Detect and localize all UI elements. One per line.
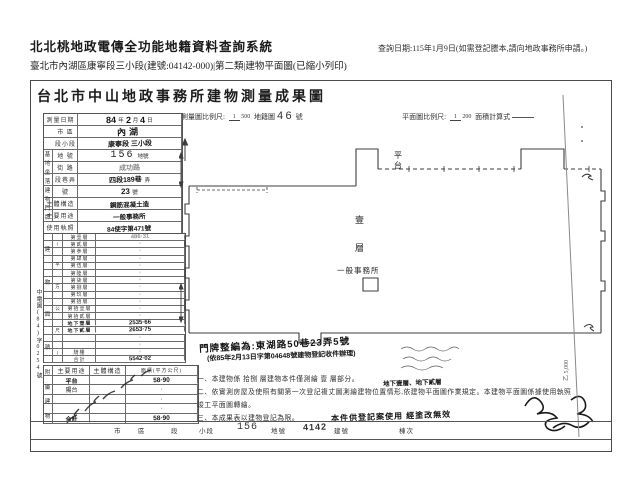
- doorno-value: 23號: [78, 186, 182, 197]
- bottom-strip-cell: 市: [114, 425, 122, 435]
- floor-row-value: ·: [96, 277, 185, 283]
- city-value: 內湖: [78, 126, 182, 137]
- cadastre-map-unit: 號: [296, 113, 303, 121]
- floor-row-value: ·: [96, 299, 185, 305]
- floor-row-label: 第柒層: [64, 277, 96, 283]
- dimension-arrow-marks: [179, 153, 183, 322]
- bottom-strip-cell: 區: [138, 425, 146, 435]
- bottom-strip-cell: 小段: [199, 425, 214, 435]
- floor-row: 第玖層·: [44, 292, 185, 299]
- city-name: 內湖: [117, 126, 141, 137]
- floor-row-label: 第肆層: [64, 256, 96, 262]
- bottom-strip-cell: 4142: [303, 422, 327, 433]
- floor-area-column-label: 建物面積: [43, 233, 53, 363]
- margin-reference-note: 中電圖(84)字0254號: [32, 289, 43, 414]
- plan-scale-label: 平面圖比例尺:: [402, 113, 446, 121]
- doorno-suffix: 號: [132, 188, 138, 196]
- floor-row-label: [64, 335, 96, 341]
- info-row: 街 路成功路: [44, 162, 182, 174]
- street-value: 成功路: [78, 162, 182, 173]
- floor-row-label: 第參層: [64, 248, 96, 254]
- survey-month-unit: 月: [133, 116, 139, 124]
- document-subtitle: 臺北市內湖區康寧段三小段(建號:04142-000)|第二類|建物平面圖(已縮小…: [30, 58, 347, 72]
- bottom-strip-cell: 地號: [271, 425, 286, 435]
- floor-row: ·: [44, 342, 185, 349]
- floor-row: 第伍層·: [44, 263, 185, 270]
- lane-name: 四段189巷: [109, 174, 142, 185]
- system-title: 北北桃地政電傳全功能地籍資料查詢系統: [30, 36, 273, 55]
- floor-row: 第拾壹層·: [44, 306, 185, 313]
- paper-stock-number: 乙 5,000: [561, 360, 570, 381]
- note-line-1: 一、本建物係 拾捌 層建物本件僅測繪 壹 層部分。: [197, 373, 577, 386]
- info-row: 市 區內湖: [44, 126, 182, 138]
- lane-suffix: 弄: [145, 176, 151, 184]
- info-row: 段小段康寧段 三小段: [44, 138, 182, 150]
- site-group-char-2: 坐: [45, 168, 51, 176]
- lot-number: 156: [110, 150, 134, 161]
- floor-row: 第陸層·: [44, 270, 185, 277]
- floor-col-label-char-1: 物: [45, 278, 51, 286]
- plan-stair-box: [363, 278, 378, 291]
- cadastre-map-number: 46: [277, 111, 294, 123]
- survey-date-value: 84年2月4日: [78, 114, 182, 125]
- floor-col-label-char-3: 積: [45, 343, 51, 351]
- floor-row-value: ·: [96, 263, 185, 269]
- floor-row: 地下貳層2653·75: [44, 327, 185, 334]
- plan-tower-outline: [356, 149, 378, 186]
- plan-use-label: 一般事務所: [337, 265, 380, 275]
- license-value-text: 84使字第471號: [107, 222, 151, 233]
- license-value: 84使字第471號: [78, 222, 182, 233]
- floor-row: 第貳層·: [44, 241, 185, 248]
- floor-row-value: ·: [96, 306, 185, 312]
- survey-year: 84: [106, 114, 116, 124]
- annex-group-char-0: 附: [45, 368, 51, 376]
- floor-col-label-char-2: 面: [45, 310, 51, 318]
- street-label: 街 路: [54, 162, 78, 173]
- floor-col-sublabel-char-4: 尺: [55, 328, 60, 334]
- plan-left-edge: [185, 186, 189, 333]
- floor-row-value: ·: [96, 292, 185, 298]
- floor-row-value: ·: [96, 248, 185, 254]
- floor-row-value: ·: [96, 342, 185, 348]
- survey-year-unit: 年: [118, 116, 124, 124]
- floor-row-label: 第拾壹層: [64, 306, 96, 312]
- site-group-char-0: 基: [45, 150, 51, 158]
- structure-value-text: 鋼筋混凝土造: [110, 198, 149, 209]
- lane-label: 段巷弄: [54, 174, 78, 185]
- floor-area-unit-label: (平方公尺): [53, 233, 63, 363]
- floor-row: 第拾層·: [44, 299, 185, 306]
- cadastre-map-label: 地籍圖: [254, 113, 275, 121]
- info-row: 號23號: [44, 186, 182, 198]
- city-label: 市 區: [54, 126, 78, 137]
- section-value: 康寧段 三小段: [78, 138, 182, 149]
- floor-label-char2: 層: [355, 243, 364, 253]
- street-name: 成功路: [119, 162, 140, 173]
- survey-form-title: 台北市中山地政事務所建物測量成果圖: [37, 86, 326, 106]
- annex-group-char-3: 物: [45, 412, 51, 420]
- area-calc-label: 面積計算式: [475, 113, 510, 121]
- license-label: 使用執照: [44, 222, 78, 233]
- survey-date-label: 測量日期: [44, 114, 78, 125]
- floor-plan-drawing: 平台 壹 層 一般事務所: [179, 133, 611, 348]
- area-calc-scribbles: [399, 343, 469, 373]
- floor-row-label: 第伍層: [64, 263, 96, 269]
- floor-col-label-char-0: 建: [45, 245, 51, 253]
- bottom-location-strip: 市區段小段156地號4142建號棟次: [31, 421, 613, 439]
- doorno-label: 號: [54, 186, 78, 197]
- floor-row-value: ·: [96, 335, 185, 341]
- plan-dimension-line: [197, 187, 267, 193]
- door-group-char-3: 牌: [45, 213, 51, 221]
- floor-row-value: ·: [96, 284, 185, 290]
- floor-row: 第捌層·: [44, 284, 185, 291]
- floor-col-sublabel-char-3: 公: [55, 306, 60, 312]
- floor-row-label: 第拾貳層: [64, 313, 96, 319]
- query-date-text: 查詢日期:115年1月9日(如需登記謄本,請向地政事務所申請。): [378, 43, 587, 54]
- floor-row-value: ·: [96, 256, 185, 262]
- floor-row-label: 第壹層: [64, 234, 96, 240]
- scale2-denominator: 200: [462, 114, 471, 120]
- cadastre-scale-label: 測量圖比例尺:: [181, 113, 225, 121]
- info-row: 地 號156地號: [44, 150, 182, 162]
- building-info-table: 測量日期84年2月4日市 區內湖段小段康寧段 三小段地 號156地號街 路成功路…: [43, 113, 183, 234]
- use-value: 一般事務所: [78, 210, 182, 221]
- lane-value: 四段189巷弄: [78, 174, 182, 185]
- cadastre-scale-fraction: 1 500: [229, 114, 251, 120]
- annex-group-char-2: 建: [45, 397, 51, 405]
- scale1-numerator: 1: [229, 114, 240, 121]
- lot-suffix: 地號: [138, 152, 149, 160]
- floor-row: 第參層·: [44, 248, 185, 255]
- use-value-text: 一般事務所: [113, 210, 146, 221]
- screenshot-root: { "header": { "system_title": "北北桃地政電傳全功…: [0, 0, 640, 480]
- floor-row-label: 第拾層: [64, 299, 96, 305]
- floor-row-label: 第貳層: [64, 241, 96, 247]
- info-row: 段巷弄四段189巷弄: [44, 174, 182, 186]
- floor-row: 第肆層·: [44, 256, 185, 263]
- bottom-strip-bottom-rule: [31, 439, 611, 440]
- platform-label: 平台: [394, 151, 403, 171]
- bottom-strip-cell: 建號: [334, 425, 349, 435]
- door-group-label: 建物門牌: [43, 185, 53, 221]
- bottom-strip-cell: 段: [171, 425, 179, 435]
- survey-day-unit: 日: [147, 116, 153, 124]
- structure-value: 鋼筋混凝土造: [78, 198, 182, 209]
- survey-day: 4: [140, 114, 145, 124]
- floor-col-sublabel-char-2: 方: [55, 284, 60, 290]
- scale1-denominator: 500: [241, 114, 250, 120]
- floor-label-char1: 壹: [355, 214, 364, 225]
- lot-label: 地 號: [54, 150, 78, 161]
- plan-scale-fraction: 1 200: [450, 114, 472, 120]
- site-group-char-3: 落: [45, 177, 51, 185]
- floor-row-label: 地下貳層: [64, 327, 96, 334]
- door-group-char-1: 物: [45, 195, 51, 203]
- floor-row: 第柒層·: [44, 277, 185, 284]
- floor-row-label: [64, 342, 96, 348]
- survey-month: 2: [126, 114, 131, 124]
- site-group-label: 基地坐落: [43, 149, 53, 185]
- info-row: 測量日期84年2月4日: [44, 114, 182, 126]
- scanned-survey-document: 台北市中山地政事務所建物測量成果圖 測量圖比例尺: 1 500 地籍圖 46 號…: [30, 80, 612, 452]
- bottom-strip-cell: 156: [237, 422, 258, 433]
- plan-right-edge: [601, 169, 605, 333]
- floor-area-table: 第壹層486·31第貳層·第參層·第肆層·第伍層·第陸層·第柒層·第捌層·第玖層…: [43, 233, 186, 363]
- lot-value: 156地號: [78, 150, 182, 161]
- scale2-numerator: 1: [450, 114, 461, 121]
- floor-row-label: 騎樓: [64, 349, 96, 355]
- info-row: 主體構造鋼筋混凝土造: [44, 198, 182, 210]
- floor-row-value: ·: [96, 270, 185, 276]
- section-label: 段小段: [54, 138, 78, 149]
- floor-row: 第壹層486·31: [44, 234, 185, 241]
- floor-row-label: 第陸層: [64, 270, 96, 276]
- doorno-number: 23: [121, 187, 130, 196]
- area-calc-rule: [512, 117, 534, 118]
- info-row: 主要用途一般事務所: [44, 210, 182, 222]
- bottom-strip-cell: 棟次: [399, 425, 414, 435]
- floor-col-sublabel-char-1: 平: [55, 262, 60, 268]
- site-group-char-1: 地: [45, 159, 51, 167]
- scale-row: 測量圖比例尺: 1 500 地籍圖 46 號 平面圖比例尺: 1 200 面積計…: [181, 111, 601, 129]
- floor-row-label: 第捌層: [64, 284, 96, 290]
- section-name: 康寧段 三小段: [107, 138, 151, 149]
- floor-col-sublabel-char-5: ): [57, 350, 59, 355]
- annex-group-char-1: 屬: [45, 383, 51, 391]
- floor-col-sublabel-char-0: (: [57, 241, 59, 246]
- plan-topright-notch: [521, 149, 564, 169]
- floor-row-label: 第玖層: [64, 292, 96, 298]
- door-group-char-0: 建: [45, 186, 51, 194]
- door-group-char-2: 門: [45, 204, 51, 212]
- floor-row: ·: [44, 335, 185, 342]
- floor-row-value: ·: [96, 241, 185, 247]
